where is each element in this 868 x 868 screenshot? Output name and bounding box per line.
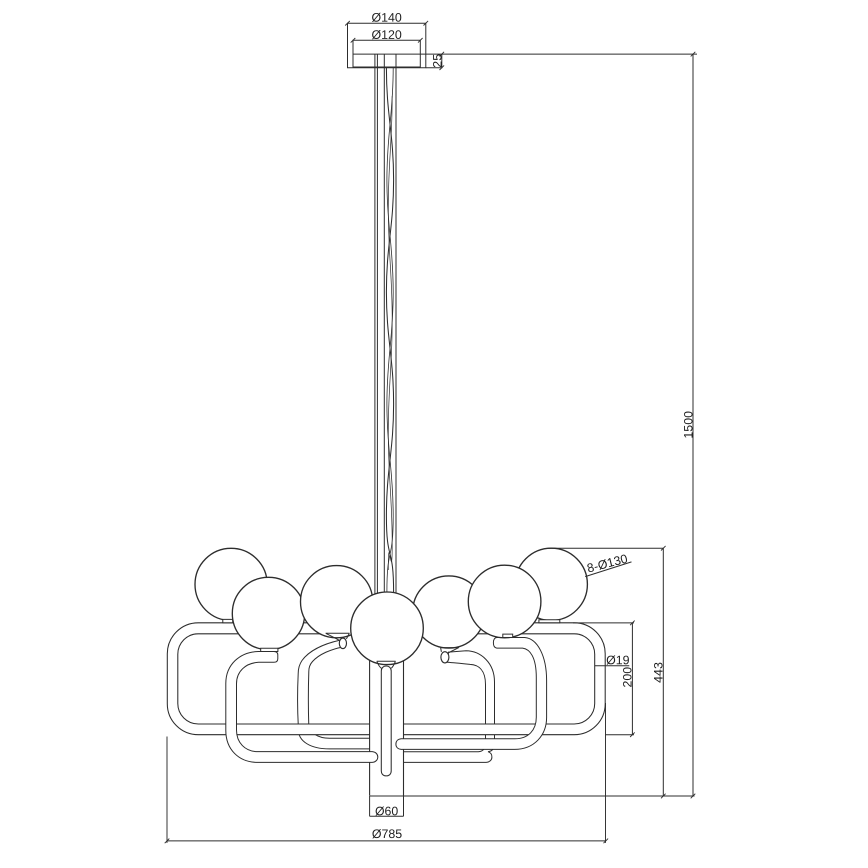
svg-text:200: 200 [621,667,635,688]
svg-text:Ø19: Ø19 [606,653,630,667]
svg-text:25: 25 [431,54,445,68]
svg-text:Ø60: Ø60 [375,804,398,818]
svg-text:1500: 1500 [682,411,696,439]
svg-text:443: 443 [652,662,666,683]
svg-text:Ø120: Ø120 [371,28,401,42]
svg-text:Ø140: Ø140 [371,11,401,25]
svg-text:Ø785: Ø785 [372,827,402,841]
